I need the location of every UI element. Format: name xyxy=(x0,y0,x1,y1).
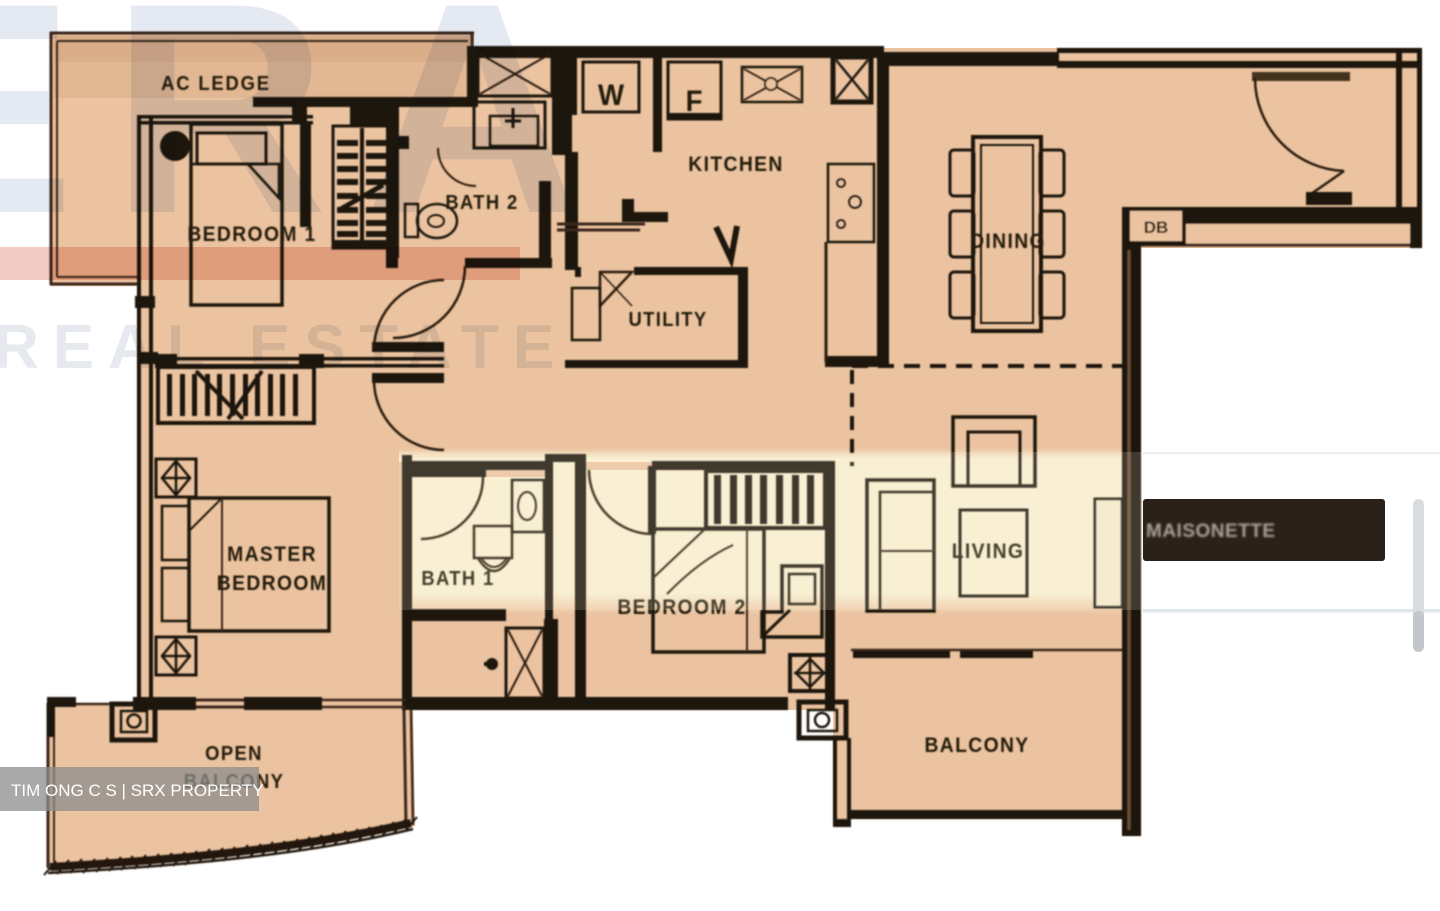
svg-text:UTILITY: UTILITY xyxy=(628,309,707,331)
svg-text:KITCHEN: KITCHEN xyxy=(688,153,783,176)
svg-text:OPEN: OPEN xyxy=(205,743,263,765)
svg-text:BALCONY: BALCONY xyxy=(924,734,1029,757)
svg-text:DINING: DINING xyxy=(970,230,1046,253)
svg-text:F: F xyxy=(686,85,703,118)
svg-text:TIM ONG C S | SRX PROPERTY: TIM ONG C S | SRX PROPERTY xyxy=(11,781,264,800)
svg-text:BEDROOM: BEDROOM xyxy=(217,572,327,595)
svg-text:ERA: ERA xyxy=(0,0,616,276)
svg-text:MASTER: MASTER xyxy=(227,543,317,566)
svg-text:REAL ESTATE: REAL ESTATE xyxy=(0,313,568,382)
svg-text:DB: DB xyxy=(1144,218,1169,237)
svg-text:MAISONETTE: MAISONETTE xyxy=(1146,521,1276,542)
